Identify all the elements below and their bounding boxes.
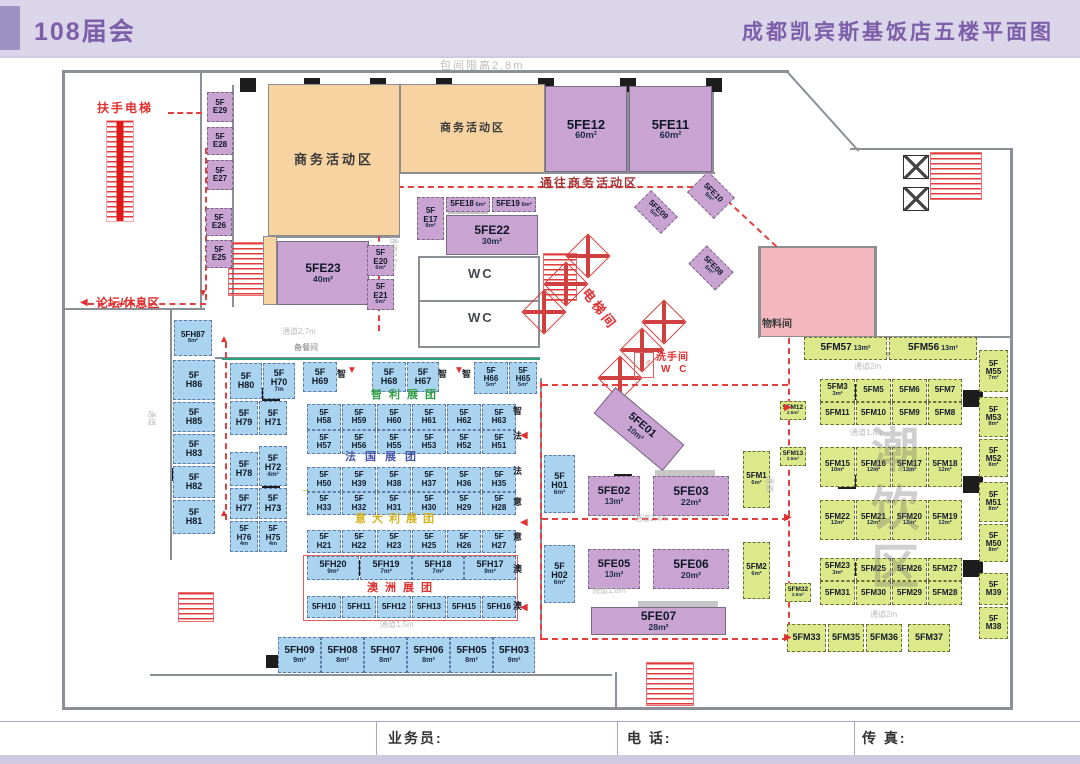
booth-5FM15: 5FM1510m²	[820, 447, 855, 487]
aisle-label: 通道1.8m	[592, 586, 626, 595]
booth-5FH22: 5FH22	[342, 530, 376, 553]
wall	[170, 310, 172, 560]
booth-5FE29: 5FE29	[207, 92, 233, 122]
booth-5FH63: 5FH63	[482, 404, 516, 430]
escalator	[106, 120, 134, 222]
booth-5FE02: 5FE0213m²	[588, 476, 640, 516]
booth-5FM38: 5FM38	[979, 607, 1008, 639]
wall	[62, 707, 1012, 710]
booth-5FH26: 5FH26	[447, 530, 481, 553]
booth-5FH18: 5FH187m²	[412, 556, 464, 580]
booth-5FH81: 5FH81	[173, 500, 215, 534]
aisle-label: 通道	[147, 410, 156, 426]
booth-5FH59: 5FH59	[342, 404, 376, 430]
booth-5FM2: 5FM26m²	[743, 542, 770, 599]
booth-5FM8: 5FM8	[928, 402, 962, 425]
group-marker-italy: 意	[513, 532, 522, 542]
booth-5FH78: 5FH78	[230, 452, 258, 486]
booth-5FH58: 5FH58	[307, 404, 341, 430]
wall	[875, 246, 877, 338]
booth-5FH12: 5FH12	[377, 596, 411, 618]
booth-5FH79: 5FH79	[230, 401, 258, 435]
group-marker-italy: 意	[513, 497, 522, 507]
booth-5FM5: 5FM5	[856, 379, 891, 402]
booth-5FH11: 5FH11	[342, 596, 376, 618]
wall	[418, 256, 540, 258]
booth-5FH69: 5FH69	[303, 362, 337, 392]
footer-divider	[376, 721, 377, 755]
booth-5FH39: 5FH39	[342, 467, 376, 492]
page-title-left: 108届会	[34, 12, 136, 48]
booth-5FH17: 5FH179m²	[464, 556, 516, 580]
path-arrow: ▼	[454, 365, 464, 377]
booth-5FM50: 5FM508m²	[979, 524, 1008, 562]
wall	[418, 256, 420, 348]
booth-5FH36: 5FH36	[447, 467, 481, 492]
booth-5FM53: 5FM538m²	[979, 397, 1008, 437]
booth-5FH30: 5FH30	[412, 492, 446, 515]
booth-5FH27: 5FH27	[482, 530, 516, 553]
booth-5FH20: 5FH209m²	[307, 556, 359, 580]
forum-rest-area-label: 论坛/休息区	[96, 297, 159, 311]
room-height-note: 包间限高2.8m	[440, 60, 524, 73]
booth-5FM3: 5FM33m²	[820, 379, 855, 402]
booth-5FH66: 5FH665m²	[474, 362, 508, 394]
booth-5FH28: 5FH28	[482, 492, 516, 515]
header-bar: 108届会 成都凯宾斯基饭店五楼平面图	[0, 0, 1080, 58]
booth-5FE26: 5FE26	[206, 208, 232, 236]
aisle-label: 通道1.8m	[850, 428, 884, 437]
escalator-label: 扶手电梯	[97, 102, 153, 116]
stairs	[178, 592, 214, 622]
booth-5FH29: 5FH29	[447, 492, 481, 515]
chile-group-line	[222, 358, 540, 360]
path-arrow: ▲	[219, 334, 229, 346]
booth-5FE28: 5FE28	[207, 127, 233, 155]
booth-5FH15: 5FH15	[447, 596, 481, 618]
booth-5FE25: 5FE25	[206, 240, 232, 268]
booth-5FE17: 5FE178m²	[417, 197, 444, 240]
path-arrow: ◀	[520, 602, 528, 614]
booth-5FH82: 5FH82	[173, 466, 215, 498]
aisle-label: 通道2.7m	[282, 327, 316, 336]
path-arrow: ▼	[198, 288, 208, 300]
path-arrow: ▶	[784, 512, 792, 524]
booth-5FM6: 5FM6	[892, 379, 927, 402]
escalator-belt	[117, 121, 124, 221]
group-australia-label: 澳洲展团	[367, 582, 439, 595]
booth-business-area-2: 商务活动区	[400, 84, 545, 173]
washroom-label: 洗手间	[656, 352, 689, 364]
booth-5FH02: 5FH026m²	[544, 545, 575, 603]
elevator-shaft	[903, 187, 929, 211]
booth-5FH21: 5FH21	[307, 530, 341, 553]
wall	[150, 674, 612, 676]
path-arrow: ◀	[520, 430, 528, 442]
booth-5FM13: 5FM132.5m²	[780, 447, 806, 466]
booth-5FE21: 5FE216m²	[367, 279, 394, 310]
booth-5FH09: 5FH099m²	[278, 637, 321, 673]
booth-5FH76: 5FH764m	[230, 521, 258, 552]
booth-5FH52: 5FH52	[447, 430, 481, 454]
booth-5FH03: 5FH039m²	[493, 637, 535, 673]
booth-5FM22: 5FM2212m²	[820, 500, 855, 540]
booth-5FM28: 5FM28	[928, 581, 962, 605]
booth-5FH61: 5FH61	[412, 404, 446, 430]
booth-5FM52: 5FM528m²	[979, 439, 1008, 477]
material-room-label: 物料间	[762, 319, 792, 331]
wall	[418, 346, 540, 348]
stairs	[646, 662, 694, 706]
booth-5FH83: 5FH83	[173, 434, 215, 464]
path-arrow: ▶	[784, 632, 792, 644]
path-dashed	[542, 384, 788, 386]
wall	[268, 236, 400, 238]
stairs	[930, 152, 982, 200]
booth-5FH70: 5FH707m	[263, 363, 295, 399]
elevator-shaft	[903, 155, 929, 179]
booth-5FH50: 5FH50	[307, 467, 341, 492]
booth-5FH65: 5FH655m²	[509, 362, 537, 394]
group-marker-australia: 澳	[513, 564, 522, 574]
aisle-label: 通道	[765, 476, 774, 492]
floor-plan-page: 108届会 成都凯宾斯基饭店五楼平面图 商务活动区商务活动区5FE295FE28…	[0, 0, 1080, 764]
booth-5FH38: 5FH38	[377, 467, 411, 492]
booth-5FM33: 5FM33	[787, 624, 826, 652]
footer-divider	[854, 721, 855, 755]
booth-5FM39: 5FM39	[979, 573, 1008, 605]
booth-5FM37: 5FM37	[908, 624, 950, 652]
group-marker-france: 法	[513, 466, 522, 476]
path-dashed	[540, 382, 542, 640]
booth-5FH16: 5FH16	[482, 596, 516, 618]
booth-5FE06: 5FE0620m²	[653, 549, 729, 589]
booth-5FH31: 5FH31	[377, 492, 411, 515]
booth-5FE03: 5FE0322m²	[653, 476, 729, 516]
beverage-zone-watermark: 潮饮区	[862, 425, 917, 599]
booth-5FH23: 5FH23	[377, 530, 411, 553]
booth-5FM18: 5FM1812m²	[928, 447, 962, 487]
booth-5FM27: 5FM27	[928, 558, 962, 581]
booth-5FE01: 5FE0110m²	[594, 387, 685, 471]
booth-5FE22: 5FE2230m²	[446, 215, 538, 255]
path-dashed	[225, 342, 227, 520]
booth-5FH68: 5FH68	[372, 362, 406, 392]
wall	[712, 84, 714, 172]
group-marker-chile: 智	[513, 406, 522, 416]
booth-5FM11: 5FM11	[820, 402, 855, 425]
pantry-label: 备餐间	[294, 343, 318, 352]
aisle-label: 通道2m	[854, 362, 881, 371]
booth-5FE07: 5FE0728m²	[591, 607, 726, 635]
booth-5FH10: 5FH10	[307, 596, 341, 618]
booth-5FM35: 5FM35	[828, 624, 864, 652]
booth-5FH32: 5FH32	[342, 492, 376, 515]
footer-divider	[617, 721, 618, 755]
booth-5FE23: 5FE2340m²	[277, 241, 369, 305]
booth-5FE05: 5FE0513m²	[588, 549, 640, 589]
booth-5FH37: 5FH37	[412, 467, 446, 492]
booth-orange-strip	[263, 236, 277, 305]
booth-5FH85: 5FH85	[173, 402, 215, 432]
salesperson-field-label: 业务员:	[388, 728, 443, 748]
booth-5FM10: 5FM10	[856, 402, 891, 425]
booth-5FM31: 5FM31	[820, 581, 855, 605]
booth-5FM55: 5FM557m²	[979, 350, 1008, 392]
path-arrow: ◀	[520, 517, 528, 529]
fax-field-label: 传 真:	[862, 728, 907, 748]
booth-5FH01: 5FH016m²	[544, 455, 575, 513]
booth-5FE27: 5FE27	[207, 160, 233, 190]
booth-5FM32: 5FM322.5m²	[785, 583, 811, 602]
group-marker-chile: 智	[337, 369, 346, 379]
wc-label: WC	[468, 311, 494, 326]
booth-5FE11: 5FE1160m²	[629, 86, 712, 172]
booth-5FM7: 5FM7	[928, 379, 962, 402]
wall	[418, 300, 540, 302]
booth-5FH07: 5FH078m²	[364, 637, 407, 673]
wc-label: WC	[468, 267, 494, 282]
group-chile-label: 智利展团	[371, 389, 443, 402]
aisle-label: 通道2m	[870, 610, 897, 619]
booth-5FM9: 5FM9	[892, 402, 927, 425]
path-arrow: ◀	[80, 297, 88, 309]
group-france-label: 法国展团	[345, 451, 425, 464]
to-business-area-label: 通往商务活动区	[540, 177, 638, 191]
booth-5FE12: 5FE1260m²	[545, 86, 627, 172]
booth-5FH06: 5FH068m²	[407, 637, 450, 673]
booth-5FH51: 5FH51	[482, 430, 516, 454]
booth-5FH87: 5FH878m²	[174, 320, 212, 356]
structural-column	[240, 78, 256, 92]
wall	[62, 70, 789, 73]
booth-5FH67: 5FH67	[407, 362, 439, 392]
restroom-icon: ♀♂	[638, 357, 652, 367]
booth-5FM23: 5FM233m²	[820, 558, 855, 581]
wall-diagonal	[786, 70, 860, 152]
booth-5FM36: 5FM36	[866, 624, 902, 652]
footer-top-line	[0, 721, 1080, 722]
booth-5FM19: 5FM1912m²	[928, 500, 962, 540]
group-italy-label: 意大利展团	[355, 513, 440, 526]
wall	[1010, 148, 1013, 710]
booth-5FM51: 5FM518m²	[979, 482, 1008, 522]
path-arrow: ▼	[347, 365, 357, 377]
booth-5FM56: 5FM56 13m²	[889, 337, 977, 360]
path-dashed	[168, 112, 202, 114]
path-arrow: ▲	[219, 508, 229, 520]
booth-5FH19: 5FH197m²	[360, 556, 412, 580]
booth-5FH86: 5FH86	[173, 360, 215, 400]
page-title-right: 成都凯宾斯基饭店五楼平面图	[742, 16, 1054, 46]
booth-5FE09: 5FE095m²	[634, 190, 678, 234]
booth-5FH77: 5FH77	[230, 488, 258, 519]
booth-5FH13: 5FH13	[412, 596, 446, 618]
booth-5FH60: 5FH60	[377, 404, 411, 430]
wall	[615, 672, 617, 710]
aisle-label: 通道1.5m	[380, 620, 414, 629]
aisle-label: 通道3.5m	[389, 236, 398, 270]
booth-5FH05: 5FH058m²	[450, 637, 493, 673]
booth-5FE10: 5FE109m²	[687, 171, 735, 219]
washroom-wc-label: W C	[661, 364, 689, 376]
booth-5FE19: 5FE19 6m²	[492, 197, 536, 212]
booth-5FH75: 5FH754m	[259, 521, 287, 552]
booth-5FE08: 5FE086m²	[688, 245, 733, 290]
booth-5FM57: 5FM57 13m²	[804, 337, 887, 360]
group-marker-chile: 智	[438, 369, 447, 379]
booth-5FE18: 5FE18 6m²	[446, 197, 490, 212]
booth-5FH25: 5FH25	[412, 530, 446, 553]
booth-5FH08: 5FH088m²	[321, 637, 364, 673]
phone-field-label: 电 话:	[627, 728, 672, 748]
booth-5FH72: 5FH724m²	[259, 446, 287, 486]
booth-5FH71: 5FH71	[259, 401, 287, 435]
booth-business-area-1: 商务活动区	[268, 84, 400, 236]
footer-bottom-strip	[0, 755, 1080, 764]
booth-5FH57: 5FH57	[307, 430, 341, 454]
wall	[200, 70, 202, 310]
booth-5FH80: 5FH80	[230, 363, 262, 399]
wall	[850, 148, 1013, 150]
elevator-hall-label: 电梯间	[578, 286, 619, 333]
aisle-label: 通道2.4m	[634, 514, 668, 523]
path-dashed	[542, 638, 788, 640]
wall	[62, 70, 65, 710]
booth-5FH62: 5FH62	[447, 404, 481, 430]
booth-5FH35: 5FH35	[482, 467, 516, 492]
path-arrow: ▶	[784, 402, 792, 414]
booth-5FH73: 5FH73	[259, 488, 287, 519]
booth-5FH33: 5FH33	[307, 492, 341, 515]
header-accent-block	[0, 6, 20, 50]
